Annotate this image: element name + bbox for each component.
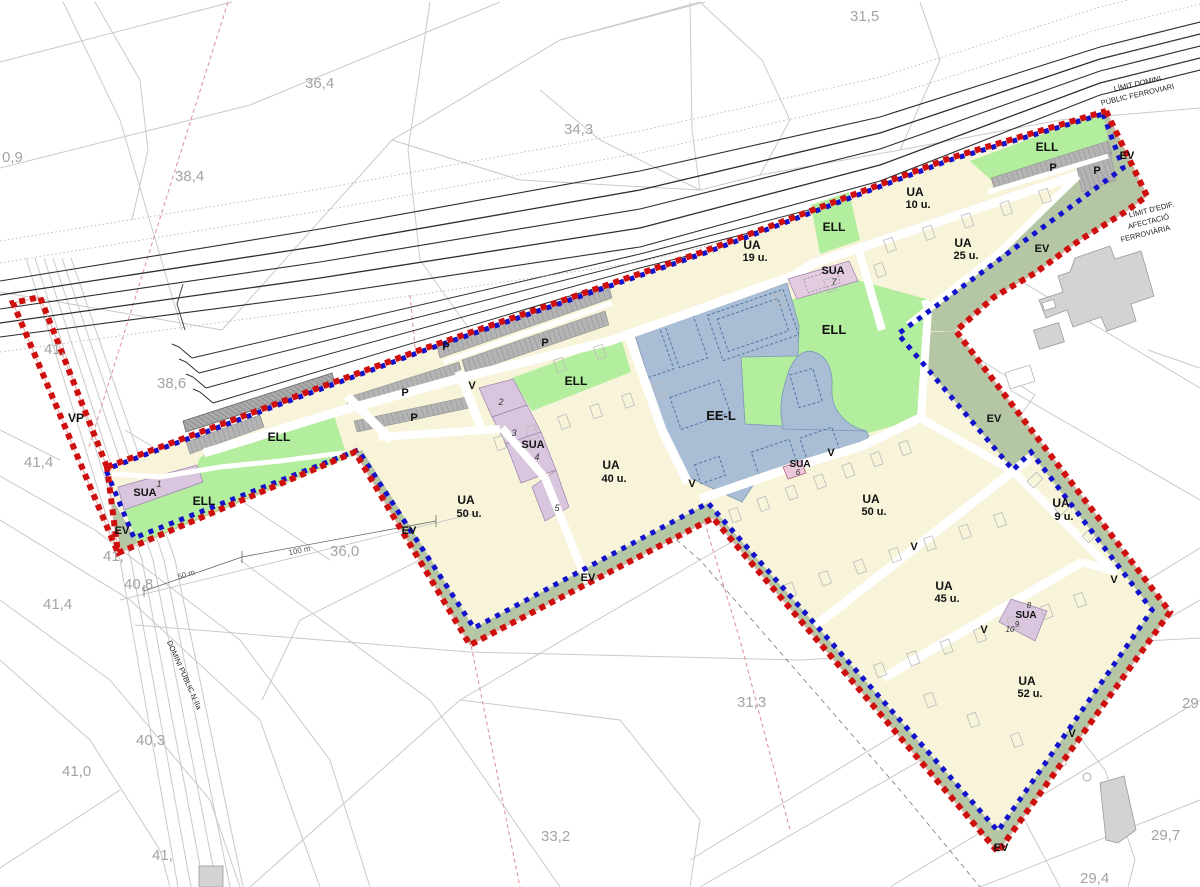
svg-text:P: P bbox=[442, 341, 449, 353]
svg-text:38,6: 38,6 bbox=[157, 375, 186, 392]
svg-text:EV: EV bbox=[581, 572, 596, 584]
svg-text:UA: UA bbox=[743, 238, 761, 252]
svg-text:3: 3 bbox=[511, 428, 516, 438]
svg-text:41,4: 41,4 bbox=[24, 454, 53, 471]
svg-text:P: P bbox=[401, 387, 408, 399]
svg-text:41,0: 41,0 bbox=[62, 763, 91, 780]
svg-text:V: V bbox=[910, 541, 918, 553]
svg-text:19 u.: 19 u. bbox=[742, 252, 767, 264]
svg-text:2: 2 bbox=[497, 397, 503, 407]
svg-text:V: V bbox=[468, 380, 476, 392]
svg-text:ELL: ELL bbox=[565, 374, 588, 388]
svg-text:UA: UA bbox=[602, 458, 620, 472]
svg-text:29,4: 29,4 bbox=[1080, 870, 1109, 887]
svg-text:UA: UA bbox=[935, 579, 953, 593]
svg-text:EV: EV bbox=[402, 525, 417, 537]
svg-text:V: V bbox=[688, 478, 696, 490]
svg-text:P: P bbox=[1093, 165, 1100, 177]
svg-text:45 u.: 45 u. bbox=[934, 593, 959, 605]
svg-text:UA: UA bbox=[862, 492, 880, 506]
svg-text:36,0: 36,0 bbox=[330, 543, 359, 560]
svg-text:9: 9 bbox=[1015, 620, 1020, 629]
svg-text:41,: 41, bbox=[103, 548, 124, 565]
svg-text:UA: UA bbox=[1018, 674, 1036, 688]
svg-text:31,3: 31,3 bbox=[737, 694, 766, 711]
svg-text:36,4: 36,4 bbox=[305, 75, 334, 92]
svg-text:ELL: ELL bbox=[823, 220, 846, 234]
svg-text:33,2: 33,2 bbox=[541, 828, 570, 845]
svg-text:8: 8 bbox=[1027, 601, 1032, 610]
svg-text:UA: UA bbox=[906, 185, 924, 199]
svg-text:4: 4 bbox=[534, 452, 539, 462]
svg-text:41,4: 41,4 bbox=[43, 596, 72, 613]
svg-text:V: V bbox=[980, 624, 988, 636]
svg-text:0,9: 0,9 bbox=[2, 149, 23, 166]
svg-text:ELL: ELL bbox=[822, 322, 847, 337]
svg-text:SUA: SUA bbox=[821, 265, 844, 277]
svg-text:10: 10 bbox=[1006, 625, 1015, 634]
svg-text:VP: VP bbox=[68, 411, 84, 425]
svg-text:UA: UA bbox=[1052, 496, 1070, 510]
svg-text:50 u.: 50 u. bbox=[861, 506, 886, 518]
svg-text:9 u.: 9 u. bbox=[1055, 511, 1074, 523]
svg-text:38,4: 38,4 bbox=[175, 168, 204, 185]
svg-text:52 u.: 52 u. bbox=[1017, 688, 1042, 700]
svg-text:EV: EV bbox=[994, 842, 1009, 854]
svg-text:25 u.: 25 u. bbox=[953, 250, 978, 262]
svg-text:V: V bbox=[1068, 728, 1076, 740]
svg-text:EV: EV bbox=[1120, 150, 1135, 162]
svg-text:EV: EV bbox=[1035, 243, 1050, 255]
svg-text:UA: UA bbox=[954, 236, 972, 250]
svg-text:SUA: SUA bbox=[133, 487, 156, 499]
svg-text:31,5: 31,5 bbox=[850, 8, 879, 25]
svg-text:P: P bbox=[541, 337, 548, 349]
svg-text:40,3: 40,3 bbox=[136, 732, 165, 749]
svg-text:ELL: ELL bbox=[268, 430, 291, 444]
svg-text:EV: EV bbox=[987, 413, 1002, 425]
svg-text:34,3: 34,3 bbox=[564, 121, 593, 138]
svg-text:EE-L: EE-L bbox=[706, 408, 736, 423]
svg-text:41,: 41, bbox=[44, 341, 65, 358]
svg-text:10 u.: 10 u. bbox=[905, 199, 930, 211]
svg-text:29,: 29, bbox=[1182, 695, 1200, 712]
svg-text:29,7: 29,7 bbox=[1151, 827, 1180, 844]
svg-text:40 u.: 40 u. bbox=[601, 473, 626, 485]
svg-text:V: V bbox=[1110, 574, 1118, 586]
svg-text:ELL: ELL bbox=[1036, 140, 1059, 154]
svg-text:UA: UA bbox=[457, 493, 475, 507]
svg-text:41,: 41, bbox=[152, 847, 173, 864]
svg-text:ELL: ELL bbox=[193, 494, 216, 508]
svg-text:6: 6 bbox=[796, 468, 801, 477]
svg-text:EV: EV bbox=[115, 525, 130, 537]
svg-text:40,8: 40,8 bbox=[124, 576, 153, 593]
svg-text:P: P bbox=[1049, 162, 1056, 174]
svg-text:V: V bbox=[827, 447, 835, 459]
svg-text:SUA: SUA bbox=[521, 439, 544, 451]
svg-text:50 u.: 50 u. bbox=[456, 508, 481, 520]
svg-text:P: P bbox=[410, 412, 417, 424]
svg-text:1: 1 bbox=[156, 479, 161, 489]
